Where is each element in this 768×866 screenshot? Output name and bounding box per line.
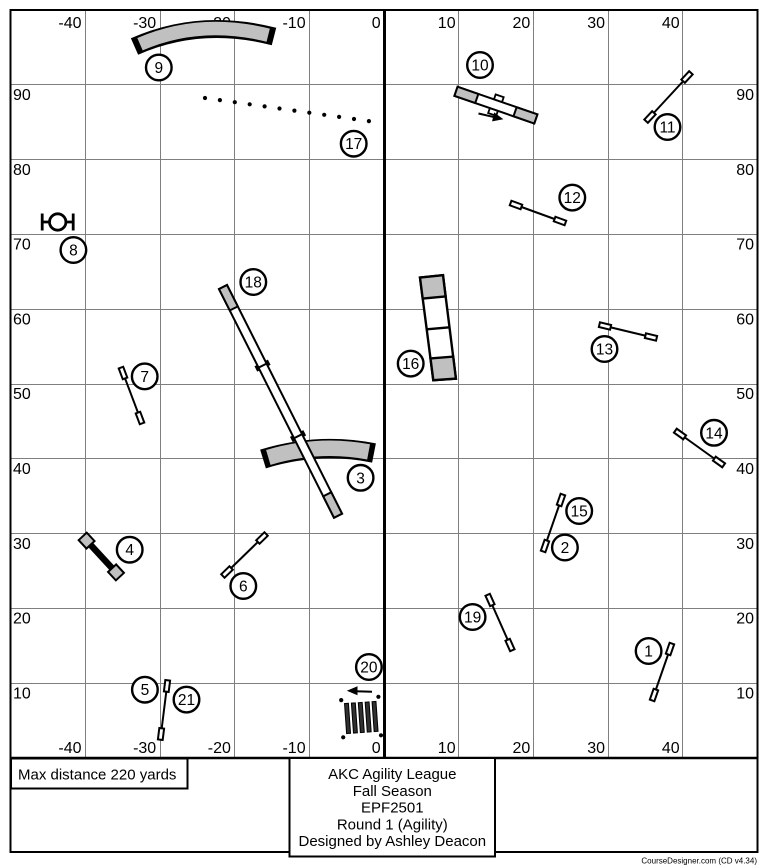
svg-text:20: 20 bbox=[736, 611, 754, 628]
svg-text:20: 20 bbox=[513, 15, 531, 32]
svg-text:40: 40 bbox=[736, 461, 754, 478]
svg-text:30: 30 bbox=[736, 536, 754, 553]
svg-text:5: 5 bbox=[141, 682, 150, 699]
svg-text:-30: -30 bbox=[133, 15, 156, 32]
svg-text:10: 10 bbox=[736, 685, 754, 702]
svg-text:1: 1 bbox=[644, 644, 653, 661]
svg-text:-40: -40 bbox=[58, 740, 81, 757]
svg-text:10: 10 bbox=[13, 685, 31, 702]
svg-text:0: 0 bbox=[372, 15, 381, 32]
svg-text:90: 90 bbox=[736, 87, 754, 104]
svg-text:20: 20 bbox=[513, 740, 531, 757]
svg-text:-10: -10 bbox=[282, 15, 305, 32]
svg-text:50: 50 bbox=[736, 386, 754, 403]
svg-text:10: 10 bbox=[438, 15, 456, 32]
svg-text:11: 11 bbox=[659, 120, 675, 137]
svg-text:80: 80 bbox=[13, 162, 31, 179]
svg-text:40: 40 bbox=[662, 740, 680, 757]
svg-text:-10: -10 bbox=[282, 740, 305, 757]
svg-text:EPF2501: EPF2501 bbox=[361, 800, 424, 817]
svg-text:40: 40 bbox=[662, 15, 680, 32]
svg-text:21: 21 bbox=[178, 692, 195, 709]
svg-text:-40: -40 bbox=[58, 15, 81, 32]
svg-text:50: 50 bbox=[13, 386, 31, 403]
svg-text:80: 80 bbox=[736, 162, 754, 179]
svg-text:18: 18 bbox=[245, 275, 262, 292]
svg-text:0: 0 bbox=[372, 740, 381, 757]
svg-text:CourseDesigner.com (CD v4.34): CourseDesigner.com (CD v4.34) bbox=[641, 857, 757, 866]
svg-text:10: 10 bbox=[471, 58, 489, 75]
svg-text:16: 16 bbox=[402, 356, 419, 373]
svg-text:Fall Season: Fall Season bbox=[353, 783, 432, 800]
svg-text:-20: -20 bbox=[208, 740, 231, 757]
svg-text:14: 14 bbox=[705, 425, 723, 442]
svg-text:2: 2 bbox=[561, 540, 570, 557]
svg-text:70: 70 bbox=[13, 237, 31, 254]
svg-text:20: 20 bbox=[360, 660, 378, 677]
svg-text:19: 19 bbox=[464, 610, 481, 627]
svg-text:8: 8 bbox=[69, 243, 78, 260]
svg-text:9: 9 bbox=[154, 60, 163, 77]
svg-text:10: 10 bbox=[438, 740, 456, 757]
svg-text:30: 30 bbox=[13, 536, 31, 553]
svg-text:30: 30 bbox=[587, 15, 605, 32]
svg-text:Designed by Ashley Deacon: Designed by Ashley Deacon bbox=[298, 833, 486, 850]
svg-text:17: 17 bbox=[345, 136, 362, 153]
svg-text:AKC Agility League: AKC Agility League bbox=[328, 766, 456, 783]
svg-text:30: 30 bbox=[587, 740, 605, 757]
svg-text:90: 90 bbox=[13, 87, 31, 104]
svg-text:70: 70 bbox=[736, 237, 754, 254]
svg-text:Round 1 (Agility): Round 1 (Agility) bbox=[337, 816, 448, 833]
svg-text:7: 7 bbox=[140, 369, 149, 386]
svg-text:6: 6 bbox=[239, 579, 248, 596]
svg-text:60: 60 bbox=[13, 311, 31, 328]
svg-text:12: 12 bbox=[564, 190, 581, 207]
svg-text:15: 15 bbox=[571, 504, 588, 521]
svg-text:3: 3 bbox=[356, 470, 365, 487]
svg-text:Max distance 220 yards: Max distance 220 yards bbox=[18, 767, 176, 784]
svg-text:4: 4 bbox=[125, 542, 134, 559]
svg-text:13: 13 bbox=[596, 342, 613, 359]
svg-text:40: 40 bbox=[13, 461, 31, 478]
svg-text:60: 60 bbox=[736, 311, 754, 328]
svg-text:20: 20 bbox=[13, 611, 31, 628]
svg-text:-30: -30 bbox=[133, 740, 156, 757]
